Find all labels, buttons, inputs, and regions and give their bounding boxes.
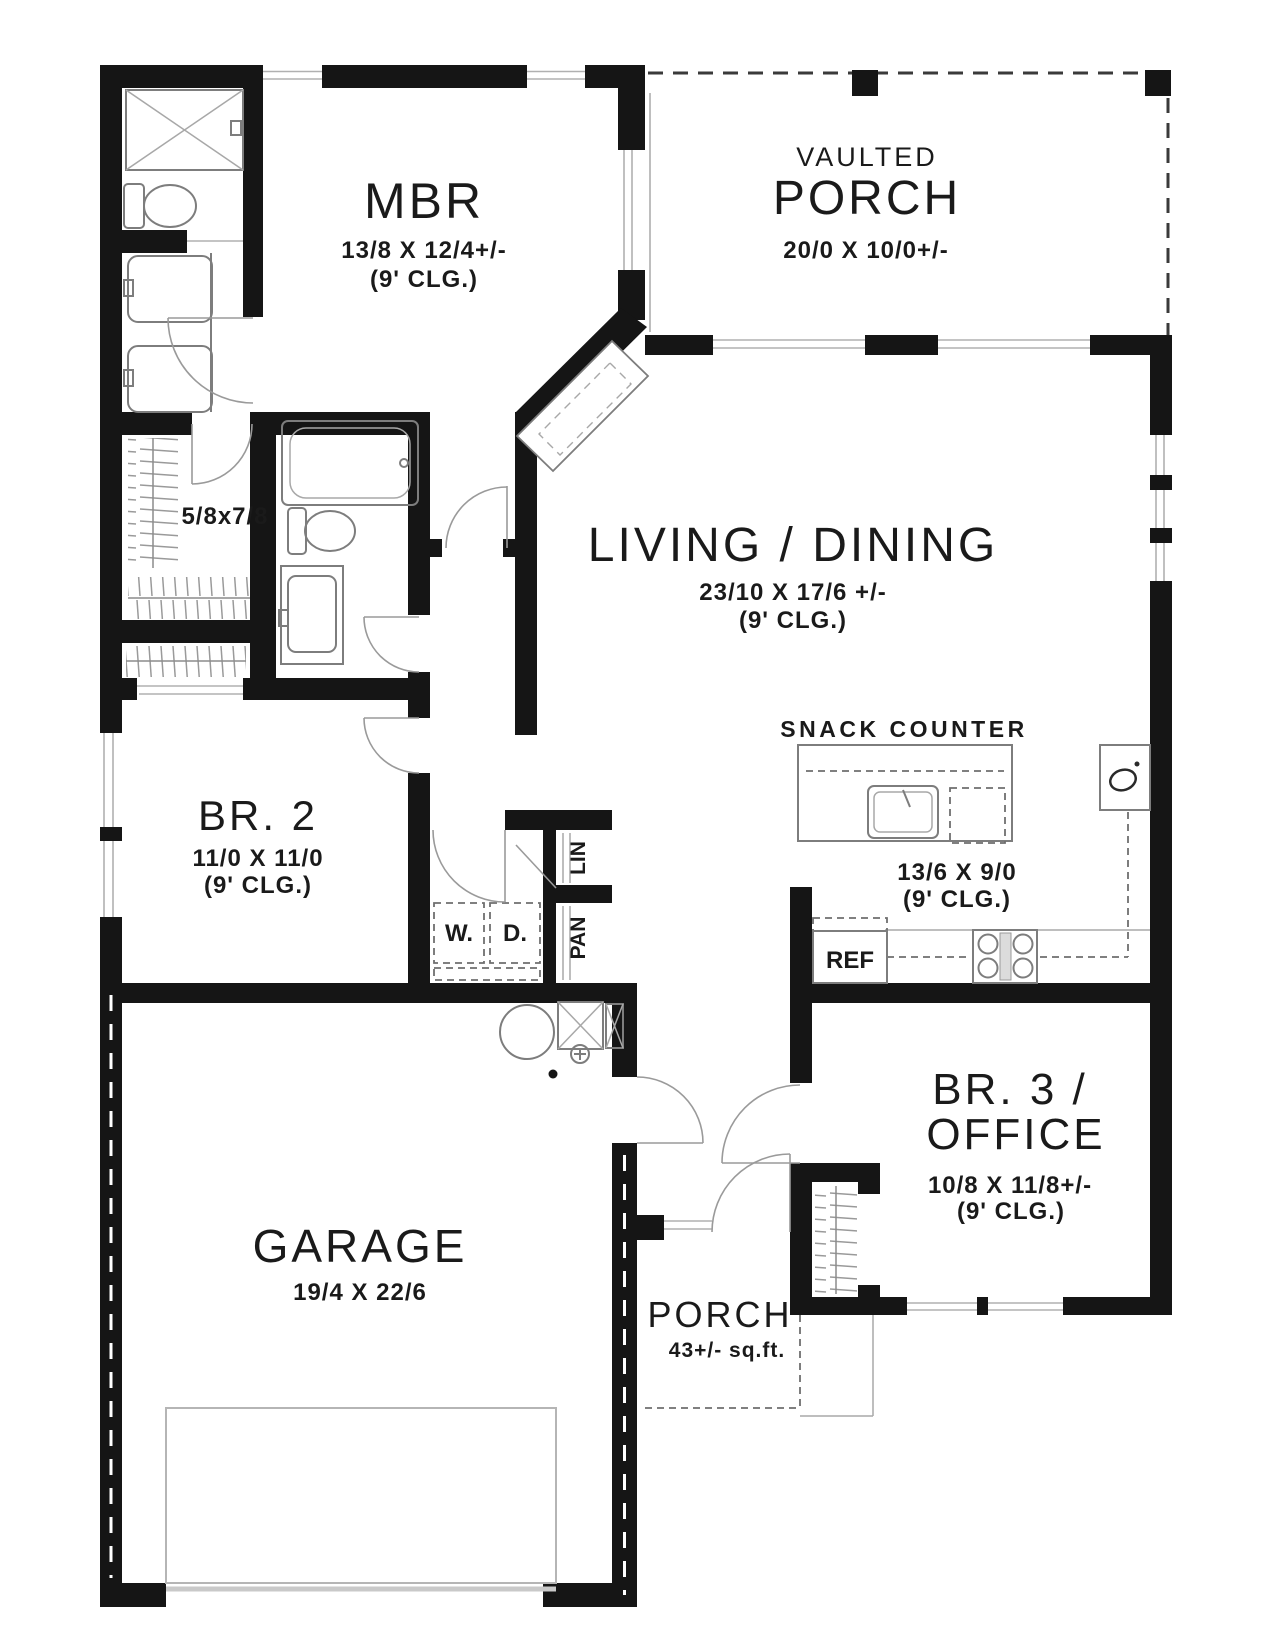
living-dim: 23/10 X 17/6 +/- [699,579,886,606]
vaulted-porch-prefix: VAULTED [796,142,938,172]
water-heater [500,1005,554,1059]
kitchen-clg: (9' CLG.) [903,886,1011,913]
br2-label: BR. 2 [198,792,318,839]
vaulted-porch-dim: 20/0 X 10/0+/- [783,237,948,264]
br2-closet-hangers [126,645,246,677]
bath2-door [364,617,419,672]
bath2-vanity [279,566,343,664]
br3-door [722,1085,800,1163]
br2-door [364,718,419,773]
pantry-label: PAN [567,917,590,960]
br3-dim: 10/8 X 11/8+/- [928,1172,1092,1199]
br3-label-line2: OFFICE [926,1110,1105,1159]
ref-label: REF [826,947,874,974]
br2-clg: (9' CLG.) [204,872,312,899]
floor-plan-drawing: MBR 13/8 X 12/4+/- (9' CLG.) VAULTED POR… [0,0,1275,1650]
furnace [549,1002,624,1079]
br3-closet-hangers [815,1186,857,1294]
mbr-hall-door [446,486,507,548]
snack-counter-island [798,745,1012,843]
stove [973,930,1037,983]
master-toilet [124,184,196,228]
snack-counter-label: SNACK COUNTER [780,716,1027,742]
floor-plan-page: MBR 13/8 X 12/4+/- (9' CLG.) VAULTED POR… [0,0,1275,1650]
dryer-label: D. [503,920,527,947]
front-door [712,1154,790,1232]
garage-dim: 19/4 X 22/6 [293,1279,427,1306]
living-clg: (9' CLG.) [739,607,847,634]
br3-label-line1: BR. 3 / [932,1065,1088,1114]
br3-clg: (9' CLG.) [957,1198,1065,1225]
vaulted-porch-label: PORCH [773,172,961,225]
washer-label: W. [445,920,473,947]
entry-porch-dim: 43+/- sq.ft. [669,1339,785,1362]
linen-label: LIN [567,841,590,875]
mbr-clg: (9' CLG.) [370,266,478,293]
entry-porch-label: PORCH [647,1294,792,1335]
mbr-dim: 13/8 X 12/4+/- [341,237,506,264]
bath2-toilet [288,508,355,554]
mbr-label: MBR [364,173,484,229]
garage-label: GARAGE [253,1220,468,1272]
laundry-door [433,830,505,902]
master-vanity [124,253,212,412]
living-label: LIVING / DINING [588,519,998,572]
garage-door [166,1408,556,1589]
walkin-closet-door [192,424,252,484]
master-shower [126,90,243,170]
wall-oven [1100,745,1150,810]
garage-entry-door [637,1077,703,1143]
kitchen-dim: 13/6 X 9/0 [897,859,1016,886]
br2-dim: 11/0 X 11/0 [192,845,323,872]
walkin-closet-dim: 5/8x7/8 [181,503,268,530]
